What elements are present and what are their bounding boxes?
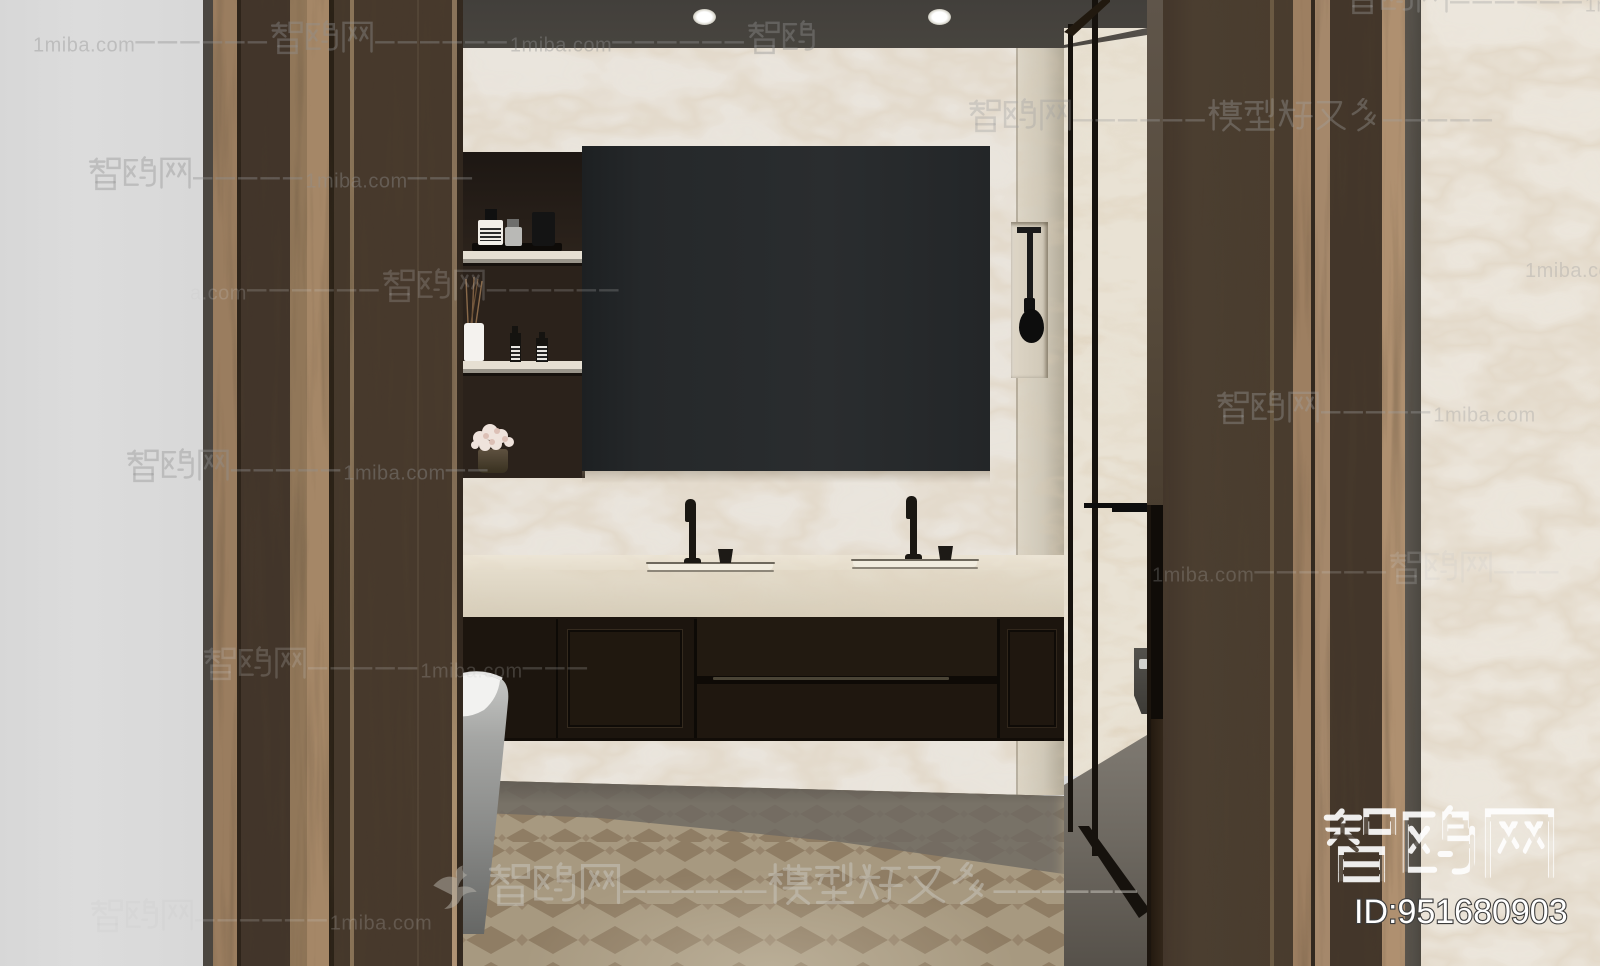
svg-text:ID:951680903: ID:951680903 [1354,893,1568,931]
